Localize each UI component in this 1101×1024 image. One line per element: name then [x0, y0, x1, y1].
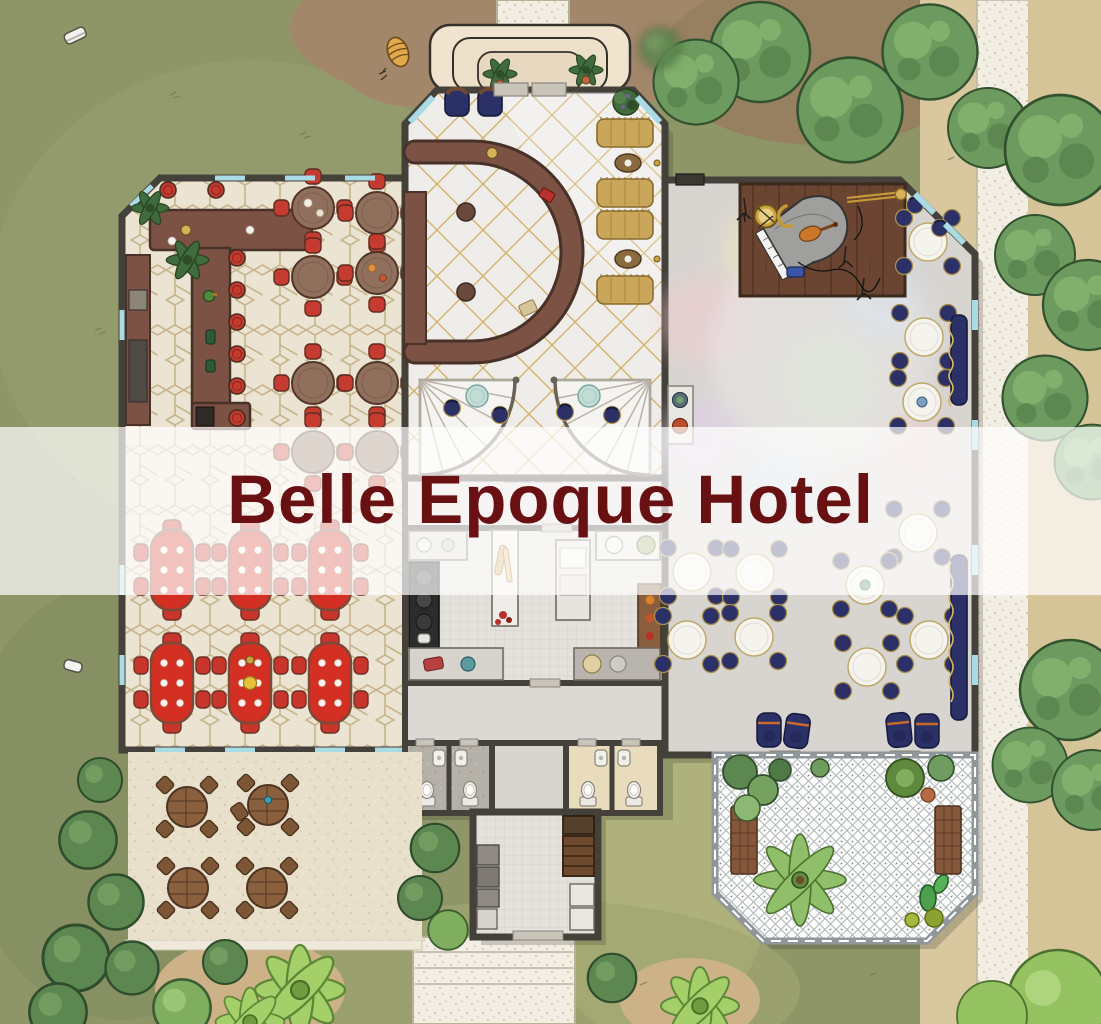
bar-appliance: [129, 340, 147, 402]
cellar-stairs: [563, 816, 594, 876]
lobby-chair: [557, 404, 574, 421]
desk-clock: [487, 148, 498, 159]
bush: [640, 28, 680, 68]
lobby-armchair: [445, 89, 469, 116]
sink: [455, 750, 467, 766]
ballroom-side-door: [676, 174, 704, 185]
bar-stool: [208, 182, 224, 198]
hotel-map: Belle Epoque Hotel: [0, 0, 1101, 1024]
bush: [106, 942, 159, 995]
bar-stool: [229, 346, 245, 362]
lounge-chair: [757, 713, 781, 747]
bush: [203, 940, 247, 984]
bar-stool: [229, 314, 245, 330]
fan-palm: [754, 834, 846, 926]
back-corridor: [405, 683, 665, 745]
back-path: [413, 937, 575, 1024]
gold-sofa: [597, 274, 653, 304]
bush: [89, 875, 144, 930]
toilet: [462, 782, 478, 807]
gold-sofa: [597, 209, 653, 239]
bush: [78, 758, 122, 802]
bush: [411, 824, 459, 872]
desk-back-counter: [404, 192, 426, 344]
bathroom-lobby: [492, 743, 567, 813]
entrance-canopy: [430, 25, 630, 91]
bush: [59, 811, 116, 868]
sink: [618, 750, 630, 766]
front-door: [532, 83, 566, 96]
stage: [737, 184, 907, 300]
lobby: [404, 83, 665, 478]
toilet: [626, 782, 642, 807]
patio: [128, 752, 422, 940]
bar-stool: [160, 182, 176, 198]
bar-stool: [229, 410, 245, 426]
back-door: [513, 931, 563, 940]
table-centerpiece: [917, 397, 927, 407]
gold-sofa: [597, 177, 653, 207]
tree: [883, 4, 978, 99]
meat-cut: [423, 656, 444, 671]
lounge-chair: [783, 712, 811, 749]
parrot: [204, 291, 215, 302]
stage-pad: [787, 267, 804, 277]
bar-stool: [229, 250, 245, 266]
bush: [398, 876, 442, 920]
conservatory: [715, 755, 975, 941]
lounge-chair: [885, 712, 912, 748]
lobby-chair: [604, 407, 621, 424]
sink: [433, 750, 445, 766]
front-door: [494, 83, 528, 96]
bar-stool: [229, 378, 245, 394]
patio-curb: [126, 940, 422, 950]
glass-table: [578, 385, 600, 407]
garden-bench: [935, 806, 961, 874]
map-title: Belle Epoque Hotel: [0, 460, 1101, 539]
drum: [755, 205, 778, 229]
thermometer: [418, 634, 430, 643]
bottle: [206, 330, 215, 344]
gold-platter: [244, 677, 257, 690]
tree: [1005, 95, 1101, 205]
lobby-plant: [613, 89, 639, 115]
wall-bench: [949, 315, 967, 406]
teal-cup: [265, 797, 272, 804]
bush: [588, 954, 636, 1002]
gold-sofa: [597, 117, 653, 147]
title-banner: Belle Epoque Hotel: [0, 427, 1101, 595]
kitchen-counter: [409, 648, 503, 680]
lobby-chair: [444, 400, 461, 417]
glass-table: [466, 385, 488, 407]
bush: [43, 925, 109, 991]
cash-register: [196, 407, 214, 426]
clerk-chair: [457, 283, 475, 301]
toilet: [580, 782, 596, 807]
bar-stool: [229, 282, 245, 298]
bar-clock: [181, 225, 191, 235]
lounge-chair: [915, 714, 939, 748]
sink: [595, 750, 607, 766]
clerk-chair: [457, 203, 475, 221]
lobby-chair: [492, 407, 509, 424]
